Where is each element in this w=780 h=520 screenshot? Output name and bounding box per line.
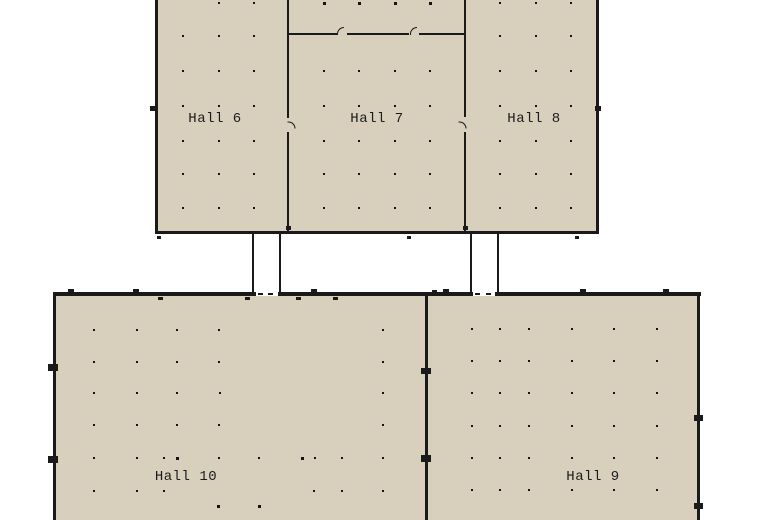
door-mark [443,289,449,293]
wall-corridor-left [252,231,254,295]
wall-top-block-right [596,0,599,233]
door-mark [150,106,156,111]
hall-6-region[interactable] [157,0,287,231]
door-mark [575,236,579,239]
wall-corridor-right [497,231,499,295]
door-mark [157,236,161,239]
corridor-right [472,233,497,292]
wall-top-block-bottom [155,231,599,234]
door-mark [580,289,586,293]
hall-7-region[interactable] [289,0,464,231]
door-mark [311,289,317,293]
hall-10-region[interactable] [56,295,425,520]
wall-bottom-block-right [697,292,700,520]
hall-9-region[interactable] [427,295,697,520]
door-mark [133,289,139,293]
corridor-left [254,233,279,292]
wall-corridor-right [470,231,472,295]
floor-plan-map[interactable]: Hall 6 Hall 7 Hall 8 Hall 9 Hall 10 [0,0,780,520]
wall-corridor-left [279,231,281,295]
hall-8-region[interactable] [466,0,596,231]
door-mark [432,290,437,293]
door-mark [68,289,74,293]
door-mark [407,236,411,239]
door-mark [663,289,669,293]
